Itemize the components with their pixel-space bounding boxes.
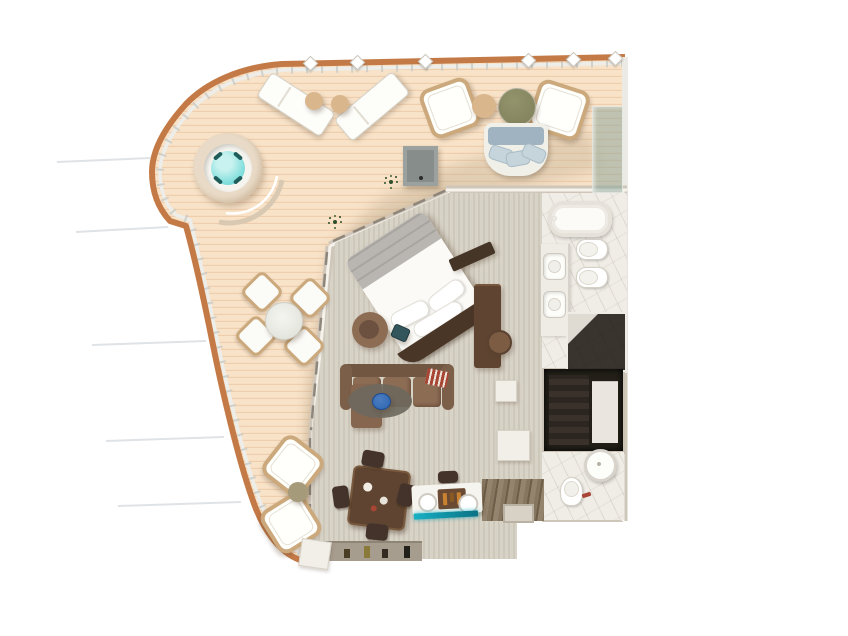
- bathtub: [548, 201, 612, 237]
- guest-toilet: [560, 477, 583, 506]
- planter-table: [403, 146, 438, 186]
- door-mat: [503, 504, 534, 523]
- toilet: [576, 239, 608, 260]
- side-table: [331, 95, 349, 113]
- ice-bucket: [418, 493, 438, 513]
- dining-chair: [365, 523, 389, 541]
- entry-storage-block: [495, 380, 517, 402]
- bottle: [443, 493, 448, 505]
- figurine: [364, 546, 370, 558]
- figurine: [344, 549, 350, 558]
- balcony-door-threshold: [298, 538, 332, 570]
- swivel-armchair: [352, 312, 388, 348]
- desk: [474, 284, 501, 368]
- hanging-clothes: [549, 375, 589, 445]
- dining-chair: [332, 485, 351, 509]
- desk-chair: [487, 330, 512, 355]
- outdoor-sofa-back: [488, 127, 544, 145]
- walk-in-shower: [566, 312, 627, 372]
- figurine: [404, 546, 410, 558]
- entry-storage-block: [497, 430, 530, 461]
- bottle: [450, 493, 454, 502]
- hot-tub-water: [211, 151, 245, 185]
- glass-wind-screen: [592, 106, 623, 193]
- outdoor-sofa: [484, 123, 548, 176]
- blue-pouf: [372, 393, 391, 410]
- shelving-unit: [592, 381, 618, 443]
- walk-in-closet-wardrobe: [544, 369, 623, 451]
- side-table-round: [472, 94, 496, 118]
- floor-plan-stage: [0, 0, 848, 636]
- vanity-sink: [543, 291, 566, 318]
- round-basin: [584, 449, 617, 482]
- side-table: [305, 92, 323, 110]
- bar-stool: [438, 471, 458, 484]
- coffee-table-round: [498, 88, 536, 126]
- bidet: [576, 267, 608, 288]
- potted-plant: [381, 172, 401, 192]
- low-table: [288, 482, 308, 502]
- figurine: [382, 549, 388, 558]
- deck-dining-table: [265, 302, 303, 340]
- potted-plant: [325, 212, 345, 232]
- vanity-sink: [543, 253, 566, 280]
- decor-shelf: [316, 541, 422, 561]
